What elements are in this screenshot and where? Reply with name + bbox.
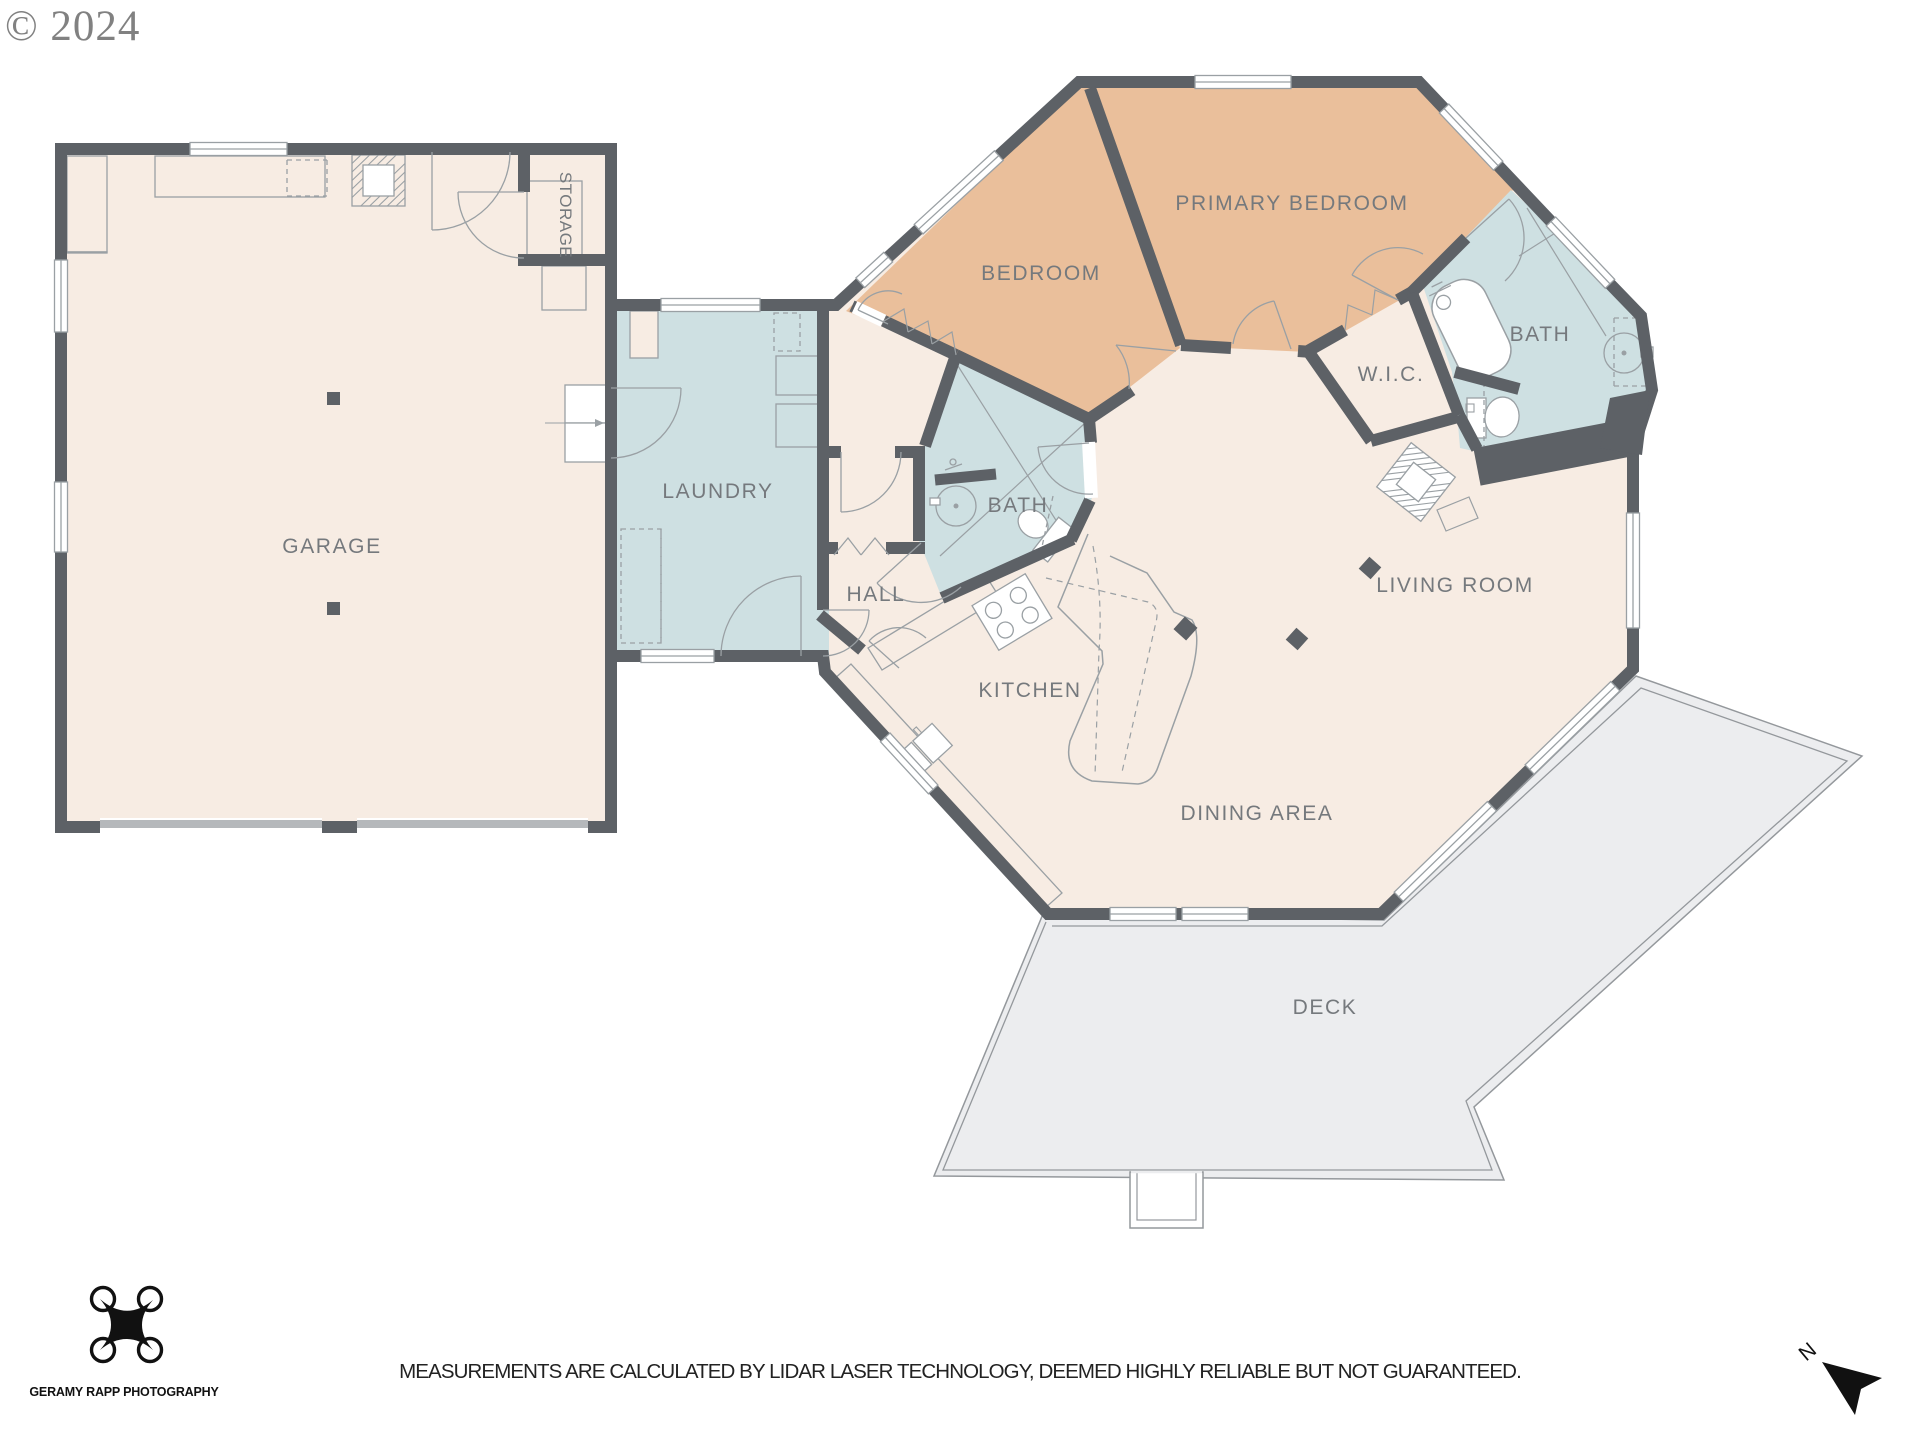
svg-text:BEDROOM: BEDROOM bbox=[981, 262, 1101, 285]
svg-text:DINING AREA: DINING AREA bbox=[1181, 802, 1334, 825]
svg-text:W.I.C.: W.I.C. bbox=[1358, 363, 1425, 386]
svg-text:GARAGE: GARAGE bbox=[282, 535, 381, 558]
svg-text:PRIMARY BEDROOM: PRIMARY BEDROOM bbox=[1175, 192, 1408, 215]
svg-text:DECK: DECK bbox=[1293, 996, 1358, 1019]
svg-text:BATH: BATH bbox=[1510, 323, 1571, 346]
svg-text:LIVING ROOM: LIVING ROOM bbox=[1376, 574, 1534, 597]
svg-text:© 2024: © 2024 bbox=[5, 3, 140, 50]
svg-text:HALL: HALL bbox=[847, 583, 906, 606]
svg-text:BATH: BATH bbox=[988, 494, 1049, 517]
svg-text:KITCHEN: KITCHEN bbox=[978, 679, 1081, 702]
svg-text:GERAMY RAPP PHOTOGRAPHY: GERAMY RAPP PHOTOGRAPHY bbox=[29, 1385, 219, 1399]
svg-text:MEASUREMENTS ARE CALCULATED BY: MEASUREMENTS ARE CALCULATED BY LIDAR LAS… bbox=[399, 1360, 1521, 1383]
svg-text:LAUNDRY: LAUNDRY bbox=[662, 480, 773, 503]
svg-text:STORAGE: STORAGE bbox=[556, 172, 575, 258]
